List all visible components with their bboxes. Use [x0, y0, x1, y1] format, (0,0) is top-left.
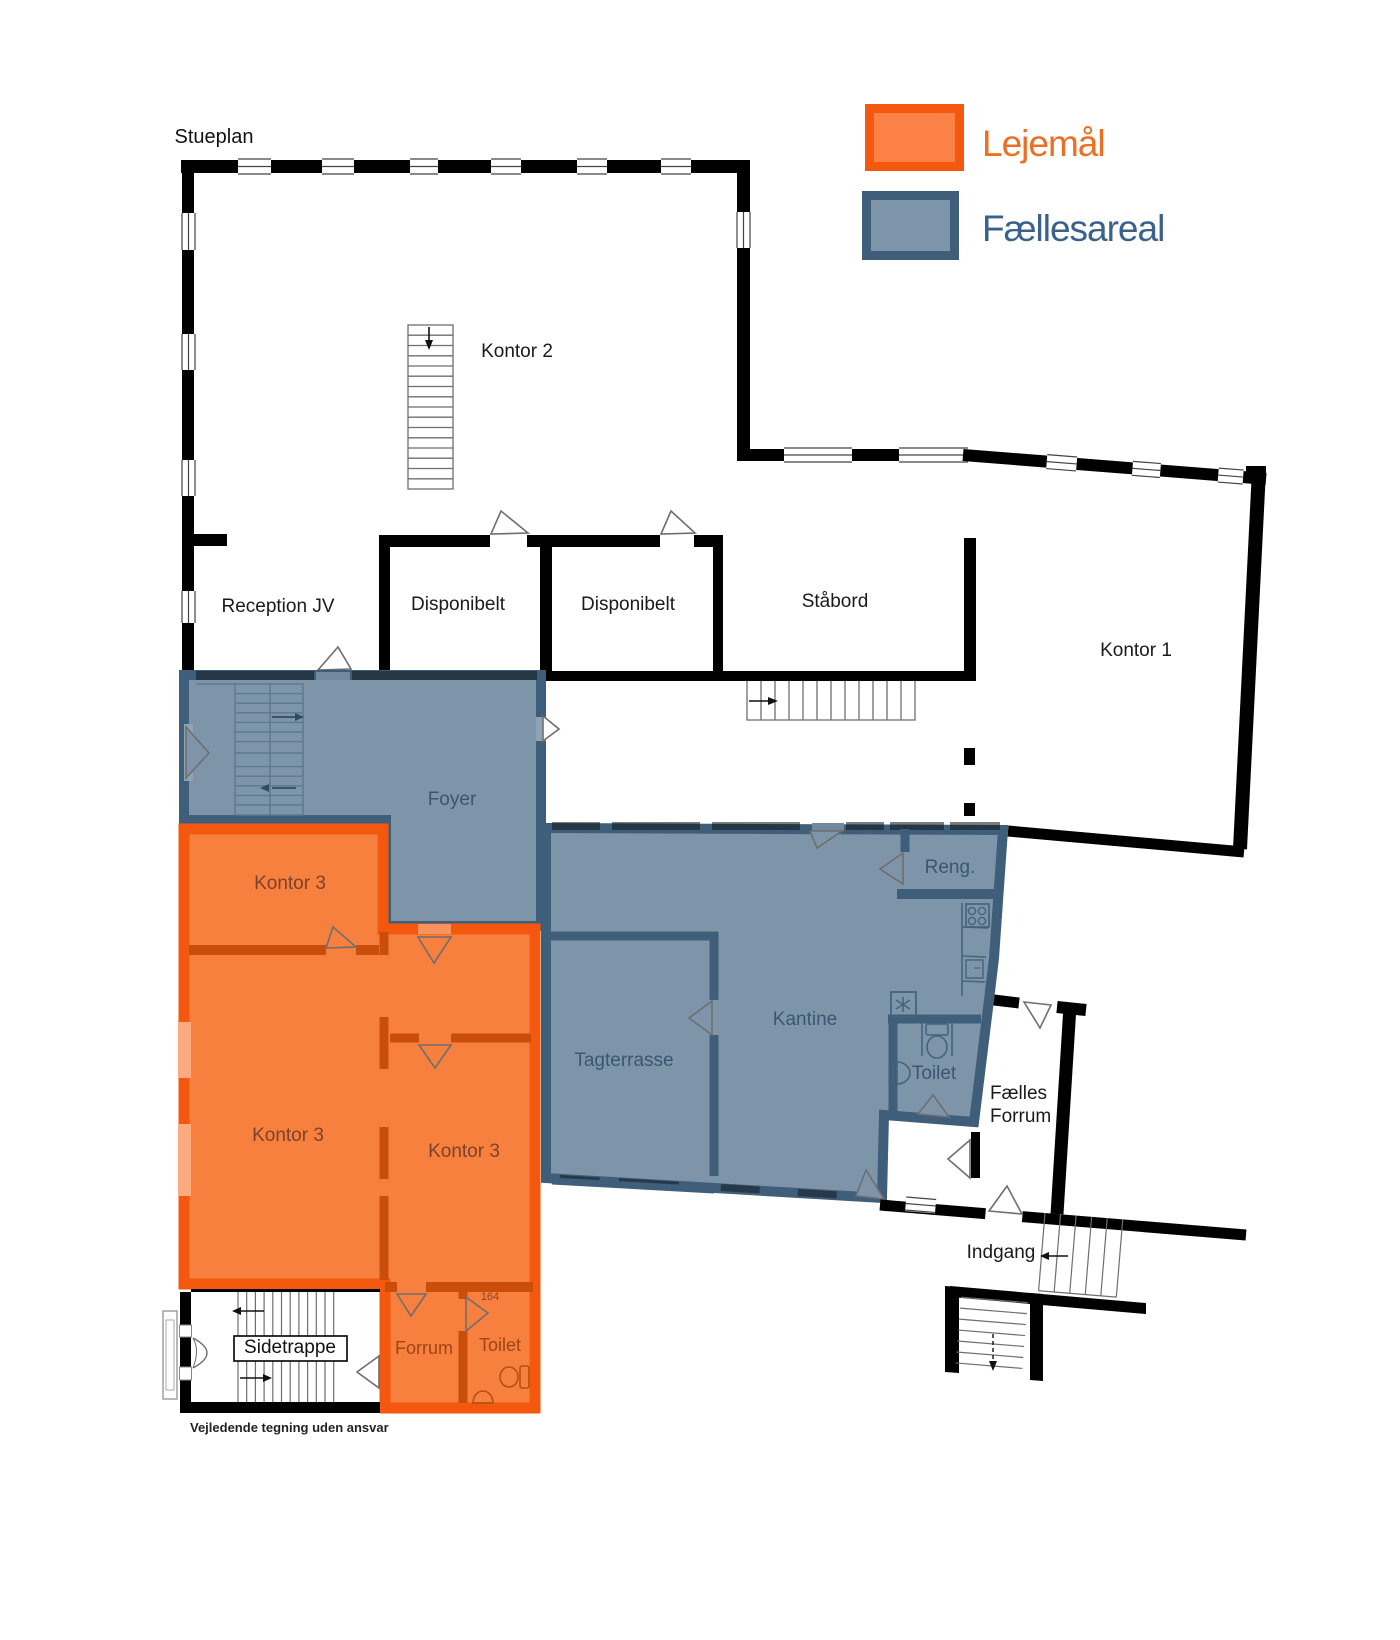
svg-text:Stueplan: Stueplan: [175, 126, 254, 148]
svg-text:Reng.: Reng.: [925, 857, 976, 878]
svg-text:Foyer: Foyer: [428, 789, 477, 810]
svg-text:Toilet: Toilet: [912, 1063, 957, 1084]
svg-text:Kontor 3: Kontor 3: [428, 1141, 500, 1162]
svg-text:Kantine: Kantine: [773, 1009, 837, 1030]
svg-text:Toilet: Toilet: [479, 1335, 521, 1355]
svg-text:Fælles: Fælles: [990, 1083, 1047, 1104]
svg-text:Disponibelt: Disponibelt: [411, 594, 506, 615]
svg-text:Indgang: Indgang: [967, 1242, 1036, 1263]
svg-text:Fællesareal: Fællesareal: [982, 208, 1164, 249]
svg-text:Disponibelt: Disponibelt: [581, 594, 676, 615]
svg-text:Forrum: Forrum: [990, 1106, 1051, 1127]
svg-text:164: 164: [481, 1291, 499, 1303]
svg-text:Kontor 3: Kontor 3: [252, 1125, 324, 1146]
svg-text:Vejledende tegning uden ansvar: Vejledende tegning uden ansvar: [190, 1420, 389, 1435]
svg-text:Tagterrasse: Tagterrasse: [574, 1050, 673, 1071]
svg-text:Lejemål: Lejemål: [982, 123, 1105, 164]
svg-text:Kontor 2: Kontor 2: [481, 341, 553, 362]
svg-text:Kontor 3: Kontor 3: [254, 873, 326, 894]
svg-text:Kontor 1: Kontor 1: [1100, 640, 1172, 661]
svg-text:Forrum: Forrum: [395, 1338, 453, 1358]
svg-text:Ståbord: Ståbord: [802, 591, 869, 612]
svg-text:Reception JV: Reception JV: [221, 596, 334, 617]
svg-text:Sidetrappe: Sidetrappe: [244, 1337, 336, 1358]
